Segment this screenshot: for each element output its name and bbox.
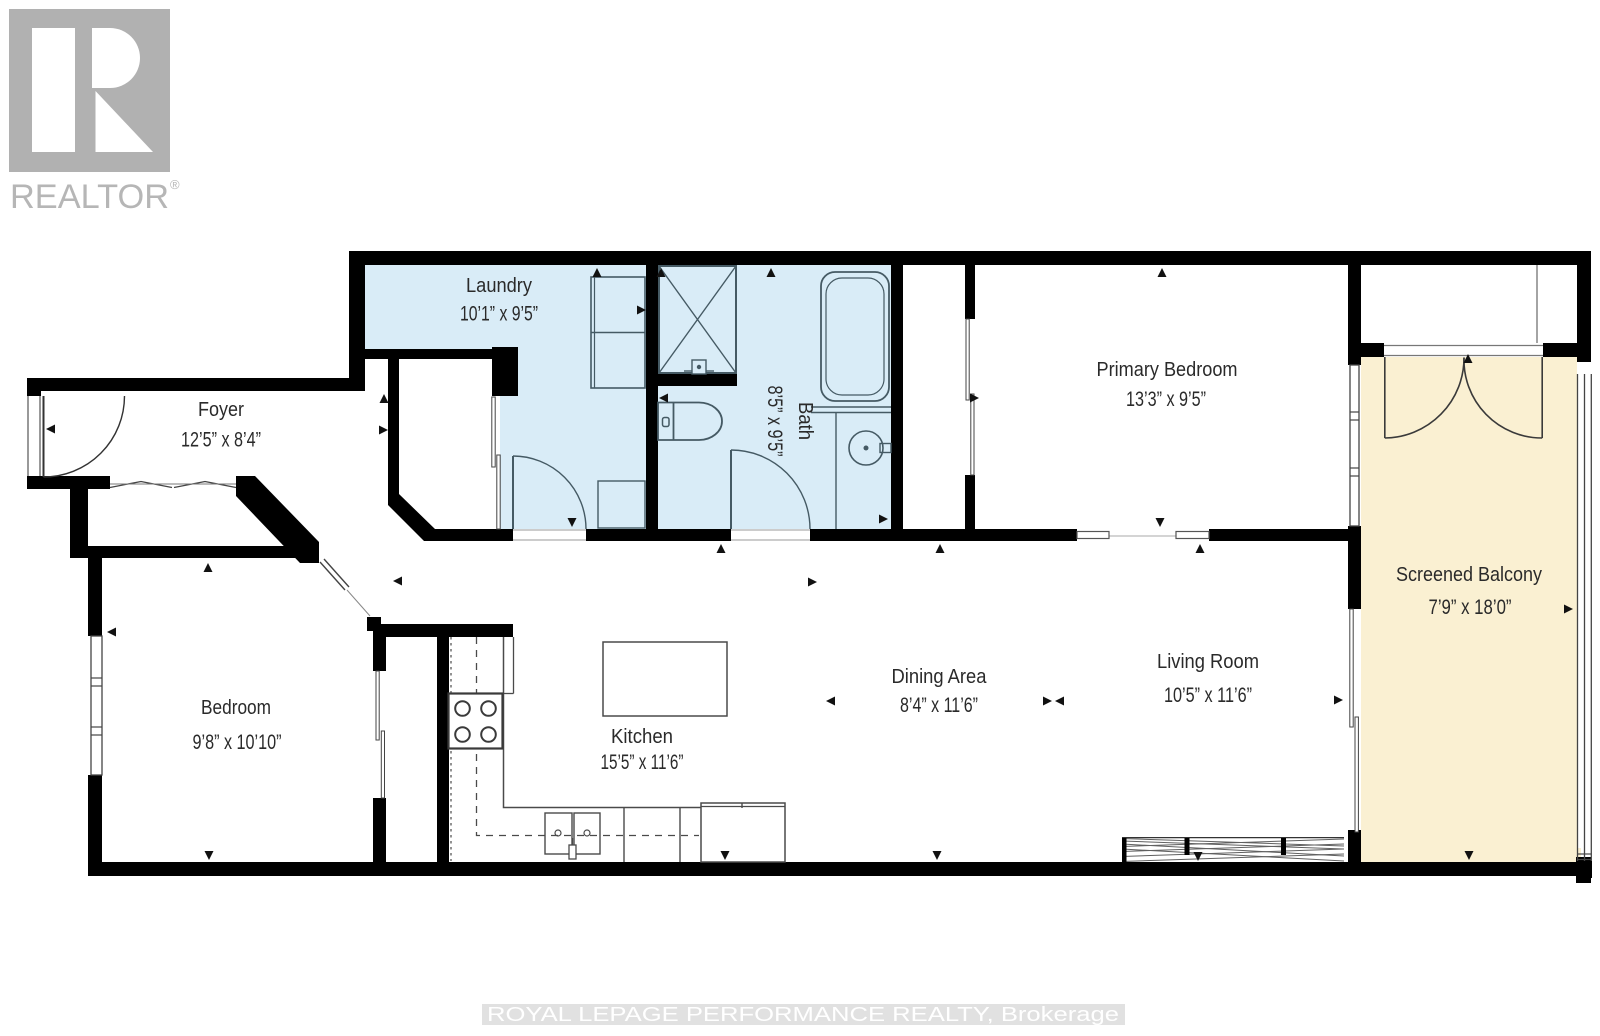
svg-text:Dining Area: Dining Area	[892, 666, 988, 688]
svg-text:Screened Balcony: Screened Balcony	[1396, 564, 1542, 586]
svg-text:®: ®	[170, 177, 180, 192]
svg-text:7’9” x 18’0”: 7’9” x 18’0”	[1429, 596, 1512, 619]
svg-text:Bath: Bath	[794, 402, 816, 440]
svg-text:Primary Bedroom: Primary Bedroom	[1097, 359, 1238, 381]
svg-text:10’1” x 9’5”: 10’1” x 9’5”	[460, 303, 538, 326]
svg-text:13’3” x 9’5”: 13’3” x 9’5”	[1126, 388, 1206, 411]
svg-text:12’5” x 8’4”: 12’5” x 8’4”	[181, 429, 261, 452]
svg-text:8’5” x 9’5”: 8’5” x 9’5”	[763, 386, 786, 457]
svg-text:Kitchen: Kitchen	[611, 726, 673, 748]
svg-text:9’8” x 10’10”: 9’8” x 10’10”	[193, 731, 282, 754]
svg-text:Foyer: Foyer	[198, 399, 244, 421]
svg-text:10’5” x 11’6”: 10’5” x 11’6”	[1164, 684, 1252, 707]
svg-text:REALTOR: REALTOR	[10, 178, 169, 216]
svg-text:15’5” x 11’6”: 15’5” x 11’6”	[601, 751, 684, 774]
svg-text:8’4” x 11’6”: 8’4” x 11’6”	[900, 694, 978, 717]
svg-text:Bedroom: Bedroom	[201, 697, 271, 719]
svg-text:Laundry: Laundry	[466, 275, 532, 297]
svg-text:Living Room: Living Room	[1157, 651, 1259, 673]
svg-text:ROYAL LEPAGE PERFORMANCE REALT: ROYAL LEPAGE PERFORMANCE REALTY, Brokera…	[487, 1004, 1119, 1026]
